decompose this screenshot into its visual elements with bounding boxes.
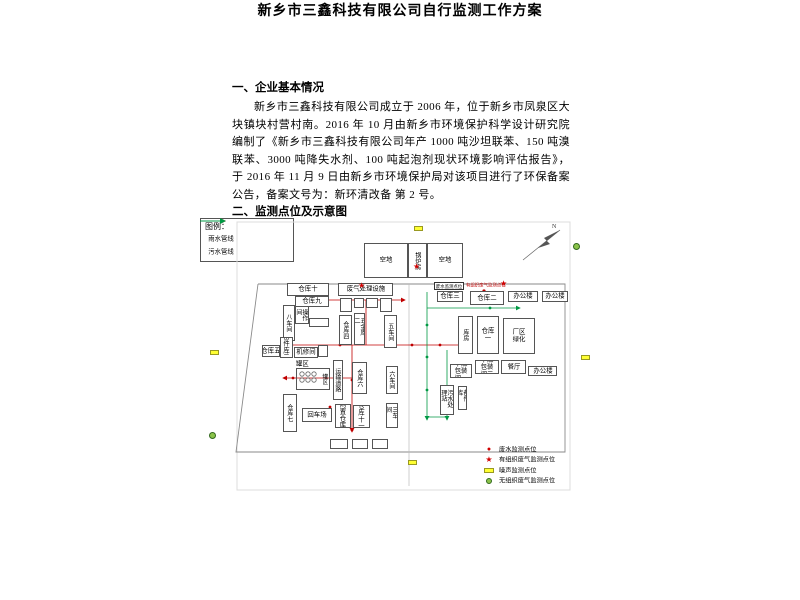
- building-factory-green: 厂区绿化: [503, 318, 535, 354]
- building-storeroom: 库房: [458, 316, 473, 354]
- noise-point-marker-bottom: [408, 460, 417, 465]
- building-warehouse-11: 仓库十一: [353, 405, 370, 428]
- building-waste-gas-treatment: 废气处理设施: [338, 283, 393, 296]
- section1-heading: 一、企业基本情况: [232, 79, 324, 95]
- building-workshop-6: 六车间: [386, 366, 398, 394]
- building-warehouse-4: 仓库四: [339, 315, 352, 345]
- building-spareparts: 备件库: [458, 386, 467, 410]
- organized-gas-star-icon: ★: [483, 456, 495, 464]
- building-idle-warehouse: 闲置仓库: [335, 404, 351, 428]
- north-compass-icon: N: [523, 224, 560, 260]
- monitoring-point-legend: ● 废水监测点位 ★ 有组织废气监测点位 噪声监测点位 无组织废气监测点位: [483, 444, 583, 486]
- wastewater-dot-icon: ●: [483, 446, 495, 453]
- small-building: [309, 318, 329, 327]
- sewage-line-arrow-icon: [200, 218, 226, 224]
- noise-point-marker-left: [210, 350, 219, 355]
- page-title: 新乡市三鑫科技有限公司自行监测工作方案: [0, 0, 800, 20]
- building-office-3: 办公楼: [528, 366, 557, 376]
- building-boiler-room: 锅炉房: [408, 243, 427, 278]
- legend-noise-item: 噪声监测点位: [483, 465, 583, 476]
- small-building: [330, 439, 348, 449]
- legend-organized-gas-item: ★ 有组织废气监测点位: [483, 455, 583, 466]
- building-warehouse-5: 仓库五: [262, 345, 280, 357]
- fugitive-gas-point-marker-ne: [573, 243, 580, 250]
- building-workshop-3: 三车间: [386, 403, 398, 428]
- building-warehouse-1: 仓库一: [477, 316, 499, 354]
- fugitive-gas-point-marker-sw: [209, 432, 216, 439]
- building-office-2: 办公楼: [542, 291, 568, 302]
- fugitive-gas-circle-icon: [486, 478, 492, 484]
- building-vacant-lot-2: 空地: [427, 243, 463, 278]
- building-turnaround: 回车场: [302, 408, 332, 422]
- building-warehouse-7: 仓库七: [283, 394, 297, 432]
- company-intro-paragraph: 新乡市三鑫科技有限公司成立于 2006 年，位于新乡市凤泉区大块镇块村营村南。2…: [232, 99, 570, 205]
- building-transport-road: 运输道路: [333, 360, 343, 400]
- building-hardware-store-2: 五金库二: [354, 313, 365, 345]
- building-machine-repair: 机修间: [294, 347, 318, 358]
- building-spareparts-2: 备件库二: [280, 337, 293, 358]
- small-building: [366, 298, 378, 308]
- building-warehouse-10: 仓库十: [287, 283, 329, 296]
- organized-gas-star-boiler: ★: [413, 263, 420, 271]
- legend-fugitive-gas-item: 无组织废气监测点位: [483, 476, 583, 487]
- tank-area-label: 罐区: [296, 359, 309, 368]
- building-warehouse-2: 仓库二: [470, 291, 504, 305]
- section2-heading: 二、监测点位及示意图: [232, 203, 347, 219]
- building-office-1: 办公楼: [508, 291, 538, 302]
- legend-wastewater-item: ● 废水监测点位: [483, 444, 583, 455]
- compass-label: N: [552, 224, 557, 230]
- building-canteen: 餐厅: [501, 360, 526, 374]
- noise-rect-icon: [484, 468, 494, 473]
- small-building: [372, 439, 388, 449]
- organized-gas-star-top: ★: [500, 280, 507, 288]
- building-vacant-lot-1: 空地: [364, 243, 408, 278]
- site-plan-diagram: N 图例： 雨水管线 污水管线 空地 锅炉房 空地 仓库十 仓库九 废气处理设施…: [200, 218, 610, 503]
- building-workshop-5: 五车间: [384, 315, 397, 348]
- building-warehouse-6: 仓库六: [352, 362, 367, 394]
- building-drying-packing-2: 干燥包装间二: [475, 360, 499, 374]
- small-building: [340, 298, 352, 312]
- building-workshop-8: 八车间: [283, 305, 295, 341]
- building-tank-area: 罐区: [296, 368, 330, 390]
- organized-gas-star-treatment: ★: [358, 282, 365, 290]
- noise-point-marker-right: [581, 355, 590, 360]
- noise-point-marker-top: [414, 226, 423, 231]
- building-warehouse-3: 仓库三: [437, 291, 463, 302]
- wastewater-point-tag: 废水监测点位: [434, 282, 464, 290]
- small-building: [352, 439, 368, 449]
- building-sewage-station: 污水处理站: [440, 385, 454, 415]
- small-building: [380, 298, 392, 312]
- small-building: [354, 298, 364, 308]
- building-drying-packing-1: 干燥包装间一: [450, 364, 472, 378]
- small-building: [318, 345, 328, 357]
- building-operation-room: 操作间: [295, 306, 309, 324]
